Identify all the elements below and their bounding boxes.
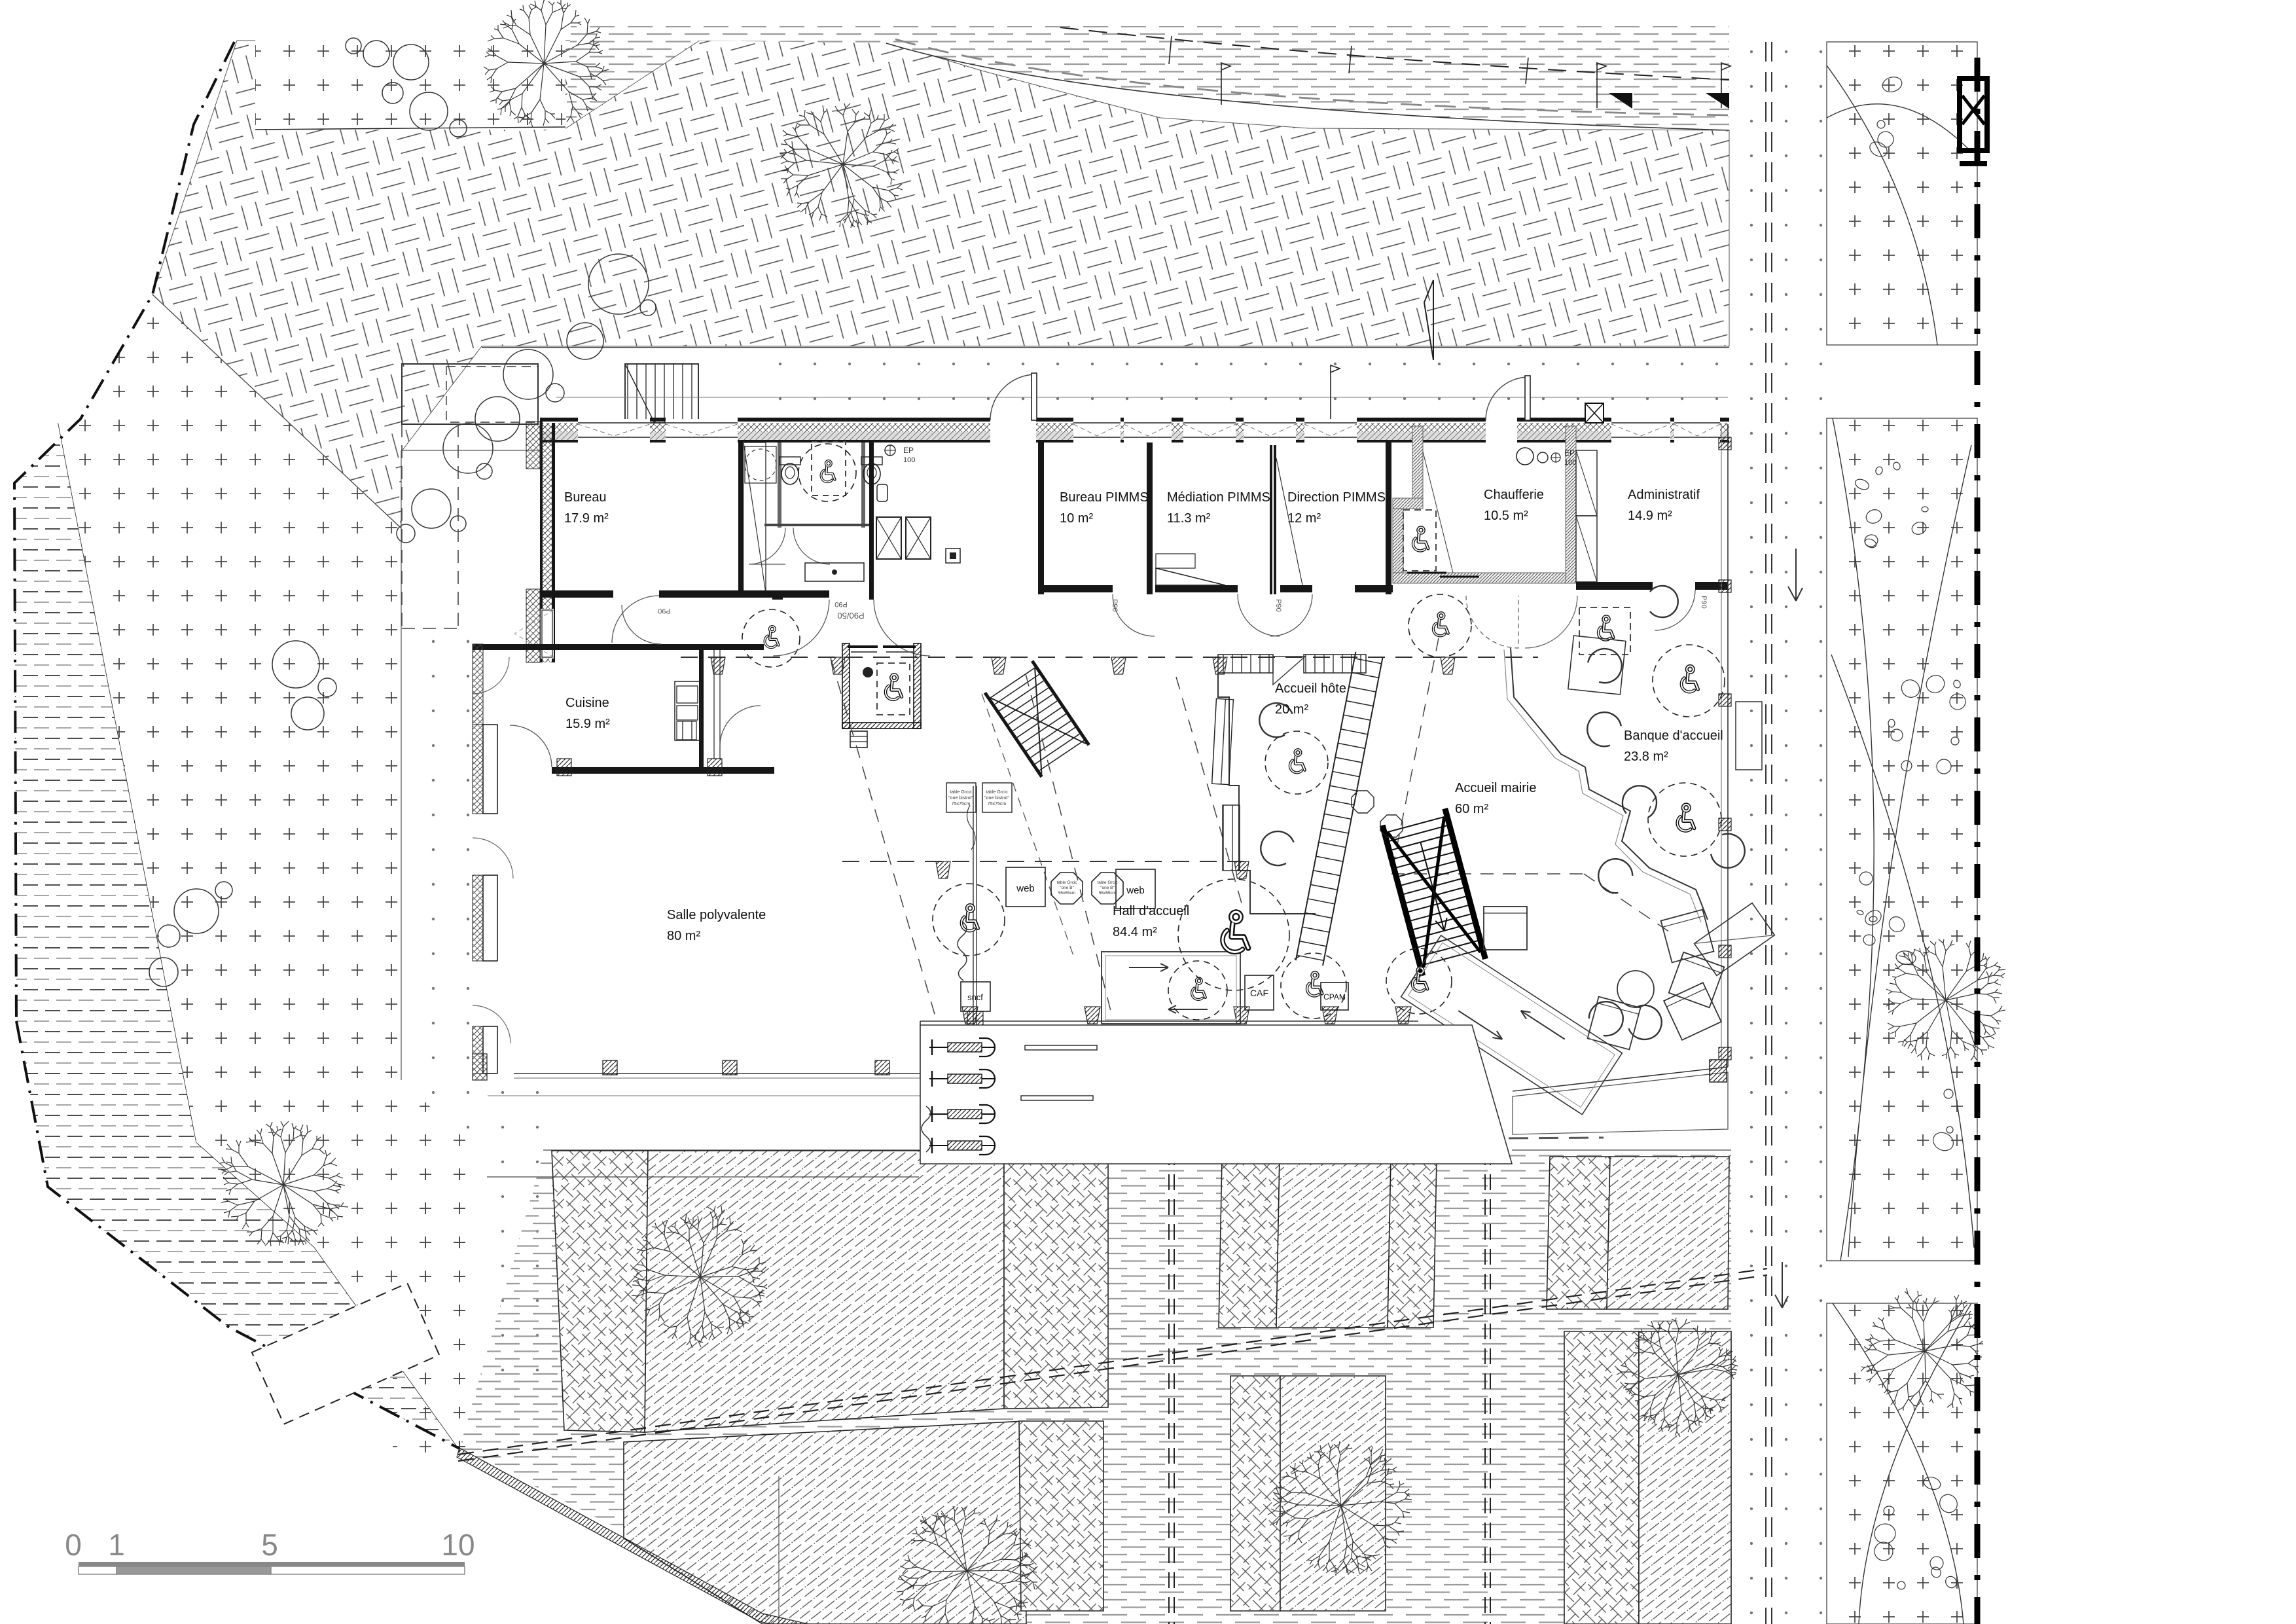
svg-text:14.9 m²: 14.9 m² [1628,509,1672,523]
svg-text:1: 1 [108,1528,125,1562]
svg-text:web: web [1126,885,1145,896]
svg-text:80 m²: 80 m² [667,929,700,943]
svg-text:P90: P90 [1700,596,1708,609]
svg-text:10.5 m²: 10.5 m² [1484,509,1528,523]
svg-text:Salle polyvalente: Salle polyvalente [667,908,766,922]
svg-text:Bureau PIMMS: Bureau PIMMS [1060,490,1149,505]
svg-text:Médiation PIMMS: Médiation PIMMS [1167,490,1270,505]
svg-text:P90: P90 [1274,599,1282,612]
svg-text:84.4 m²: 84.4 m² [1113,925,1157,939]
svg-text:75x75cm: 75x75cm [988,802,1007,806]
svg-text:15.9 m²: 15.9 m² [565,717,610,731]
svg-text:100: 100 [903,456,915,464]
svg-text:CPAM: CPAM [1323,992,1346,1001]
svg-text:web: web [1016,883,1035,894]
svg-text:Bureau: Bureau [564,490,607,505]
svg-text:Accueil hôte: Accueil hôte [1275,681,1346,696]
svg-text:Chaufferie: Chaufferie [1484,488,1544,502]
svg-text:0: 0 [65,1528,82,1562]
svg-text:5: 5 [261,1528,278,1562]
svg-text:P90: P90 [1111,599,1119,612]
svg-text:P90: P90 [658,607,671,615]
svg-text:P90/50: P90/50 [837,611,864,621]
svg-text:55x55cm: 55x55cm [1099,891,1116,895]
svg-text:table Grcic: table Grcic [950,790,972,795]
svg-text:Accueil mairie: Accueil mairie [1455,781,1536,795]
svg-text:"one bistrot": "one bistrot" [948,796,973,801]
svg-text:75x75cm: 75x75cm [952,802,971,806]
svg-text:20 m²: 20 m² [1275,702,1308,717]
svg-text:55x55cm: 55x55cm [1058,891,1075,895]
svg-text:23.8 m²: 23.8 m² [1624,749,1668,764]
svg-text:10: 10 [441,1528,475,1562]
svg-text:sncf: sncf [967,992,983,1002]
svg-text:table Grcic: table Grcic [1097,880,1118,885]
svg-text:EP: EP [903,446,914,455]
svg-text:10 m²: 10 m² [1060,511,1093,526]
svg-text:EP: EP [1564,448,1575,458]
svg-text:Hall d'accueil: Hall d'accueil [1113,904,1189,918]
svg-text:Administratif: Administratif [1628,488,1700,502]
svg-text:CAF: CAF [1250,988,1268,998]
svg-text:60 m²: 60 m² [1455,802,1488,816]
svg-text:"one B": "one B" [1100,886,1115,890]
svg-text:table Grcic: table Grcic [1056,880,1077,885]
svg-text:"one B": "one B" [1060,886,1074,890]
svg-text:Cuisine: Cuisine [565,696,609,710]
svg-text:11.3 m²: 11.3 m² [1167,511,1211,526]
svg-text:Banque d'accueil: Banque d'accueil [1624,729,1723,743]
svg-text:table Grcic: table Grcic [986,790,1008,795]
svg-text:P90: P90 [834,600,848,608]
svg-text:"one bistrot": "one bistrot" [984,796,1009,801]
svg-text:100: 100 [1564,459,1576,467]
svg-text:12 m²: 12 m² [1287,511,1321,526]
svg-text:17.9 m²: 17.9 m² [564,511,609,526]
svg-text:Direction PIMMS: Direction PIMMS [1287,490,1386,505]
